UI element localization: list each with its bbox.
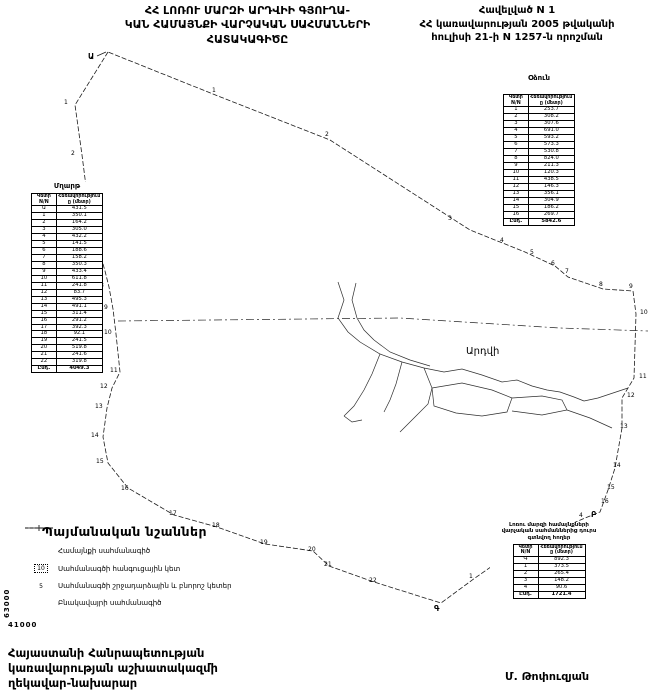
boundary-point-label: 17 [169,510,177,517]
boundary-point-label: 12 [100,383,108,390]
boundary-point-label: 16 [601,498,609,505]
boundary-point-label: 5 [530,249,534,256]
boundary-point-label: Ա [88,52,94,61]
distance-table: Կետի N/NՀեռավորությունը (մետր)1253.72308… [503,94,575,226]
column-header: Կետի N/N [504,95,529,107]
boundary-point-label: 9 [629,283,633,290]
boundary-point-label: 11 [110,367,118,374]
column-header: Հեռավորությունը (մետր) [528,95,574,107]
legend-item-label: Բնակավայրի սահմանագիծ [58,599,162,607]
settlement-road [344,354,380,416]
boundary-point-label: 14 [613,462,621,469]
settlement-road [567,410,612,428]
distance-table: Կետի N/NՀեռավորությունը (մետր)Գ892.31373… [513,544,586,599]
approval-line: Հայաստանի Հանրապետության [8,646,218,661]
legend-title: Պայմանական նշաններ [42,524,259,539]
settlement-road [400,414,418,432]
settlement-road [418,368,432,414]
boundary-point-label: 10 [640,309,648,316]
boundary-point-label: 6 [551,260,555,267]
boundary-point-label: 2 [325,131,329,138]
boundary-point-label: 7 [565,268,569,275]
boundary-point-label: 1 [64,99,68,106]
column-header: Հեռավորությունը (մետր) [56,194,102,206]
total-row: Ընդ.5842.6 [504,218,575,225]
boundary-point-label: 22 [369,577,377,584]
legend-item: 5 Սահմանագծի շրջադարձային և բնորոշ կետեր [24,582,259,590]
total-row: Ընդ.4049.3 [32,366,103,373]
settlement-block [512,396,567,415]
table-title: Մղարթ [31,182,103,190]
turning-point-icon: 5 [24,583,58,590]
mghart-border-table: Մղարթ Կետի N/NՀեռավորությունը (մետր)Ա431… [31,182,103,373]
boundary-point-label: Գ [434,604,440,613]
section-line [118,318,648,331]
page: ԱԲԳ1234567891011121314151617181920212212… [0,0,649,694]
boundary-point-label: 12 [627,392,635,399]
annex-line: Հավելված N 1 [388,4,646,18]
boundary-point-label: 15 [607,484,615,491]
legend-item-label: Սահմանագծի հանգուցային կետ [58,565,180,573]
annex-line: ՀՀ կառավարության 2005 թվականի [388,18,646,32]
legend-item-label: Համայնքի սահմանագիծ [58,547,150,555]
boundary-point-label: 3 [448,215,452,222]
stream-line [352,283,374,340]
stream-line [338,282,360,342]
odzun-border-table: Օձուն Կետի N/NՀեռավորությունը (մետր)1253… [503,74,575,226]
boundary-point-label: 21 [324,561,332,568]
boundary-point-label: 8 [599,281,603,288]
boundary-point-label: 13 [620,423,628,430]
legend-item: Բնակավայրի սահմանագիծ [24,599,259,607]
settlement-road [344,416,362,422]
signature-name: Մ. Թոփուզյան [505,670,589,683]
annex-note: Հավելված N 1 ՀՀ կառավարության 2005 թվակա… [388,4,646,45]
settlement-name-label: Արդվի [466,346,499,357]
approval-line: ղեկավար-նախարար [8,676,218,691]
legend-item: 10 Սահմանագծի հանգուցային կետ [24,564,259,573]
table-row: 15311.4 [32,310,103,317]
legend-item: Համայնքի սահմանագիծ [24,547,259,555]
settlement-block [432,383,512,416]
settlement-road [384,362,402,412]
page-title-line: ՀԱՏԱԿԱԳԻԾԸ [100,33,395,47]
boundary-point-label: 15 [96,458,104,465]
table-title: Լոռու մարզի համայնքների վարչական սահմանն… [490,522,608,541]
boundary-point-label: 19 [260,539,268,546]
legend: Պայմանական նշաններ Համայնքի սահմանագիծ 1… [24,524,259,616]
junction-a-arrow [97,52,106,56]
boundary-point-label: 20 [308,546,316,553]
table-title: Օձուն [503,74,575,82]
distance-table: Կետի N/NՀեռավորությունը (մետր)Ա431.51350… [31,193,103,373]
grid-coordinate-bottom: 41000 [8,621,37,629]
boundary-point-label: 1 [469,573,473,580]
column-header: Կետի N/N [513,544,538,556]
boundary-point-label: 2 [71,150,75,157]
boundary-point-label: 13 [95,403,103,410]
page-title: ՀՀ ԼՈՌՈՒ ՄԱՐԶԻ ԱՐԴՎԻԻ ԳՅՈՒՂԱ- ԿԱՆ ՀԱՄԱՅՆ… [100,4,395,47]
legend-item-label: Սահմանագծի շրջադարձային և բնորոշ կետեր [58,582,232,590]
boundary-point-label: 11 [639,373,647,380]
outside-lands-table: Լոռու մարզի համայնքների վարչական սահմանն… [490,522,608,599]
boundary-point-label: 16 [121,485,129,492]
boundary-point-label: 4 [500,237,504,244]
column-header: Հեռավորությունը (մետր) [538,544,585,556]
column-header: Կետի N/N [32,194,57,206]
boundary-point-label: 9 [104,304,108,311]
approval-text: Հայաստանի Հանրապետության կառավարության ա… [8,646,218,691]
grid-coordinate-vertical: 63000 [3,589,11,618]
settlement-road [584,388,628,401]
table-row: 16269.7 [504,211,575,218]
boundary-point-label: Բ [591,510,596,519]
boundary-point-label: 4 [579,512,583,519]
junction-point-icon: 10 [24,564,58,573]
approval-line: կառավարության աշխատակազմի [8,661,218,676]
annex-line: հուլիսի 21-ի N 1257-ն որոշման [388,31,646,45]
boundary-point-label: 14 [91,432,99,439]
page-title-line: ԿԱՆ ՀԱՄԱՅՆՔԻ ՎԱՐՉԱԿԱՆ ՍԱՀՄԱՆՆԵՐԻ [100,18,395,32]
page-title-line: ՀՀ ԼՈՌՈՒ ՄԱՐԶԻ ԱՐԴՎԻԻ ԳՅՈՒՂԱ- [100,4,395,18]
boundary-point-label: 1 [212,87,216,94]
table-row: 16291.2 [32,317,103,324]
total-row: Ընդ.1721.4 [513,591,585,598]
boundary-point-label: 10 [104,329,112,336]
